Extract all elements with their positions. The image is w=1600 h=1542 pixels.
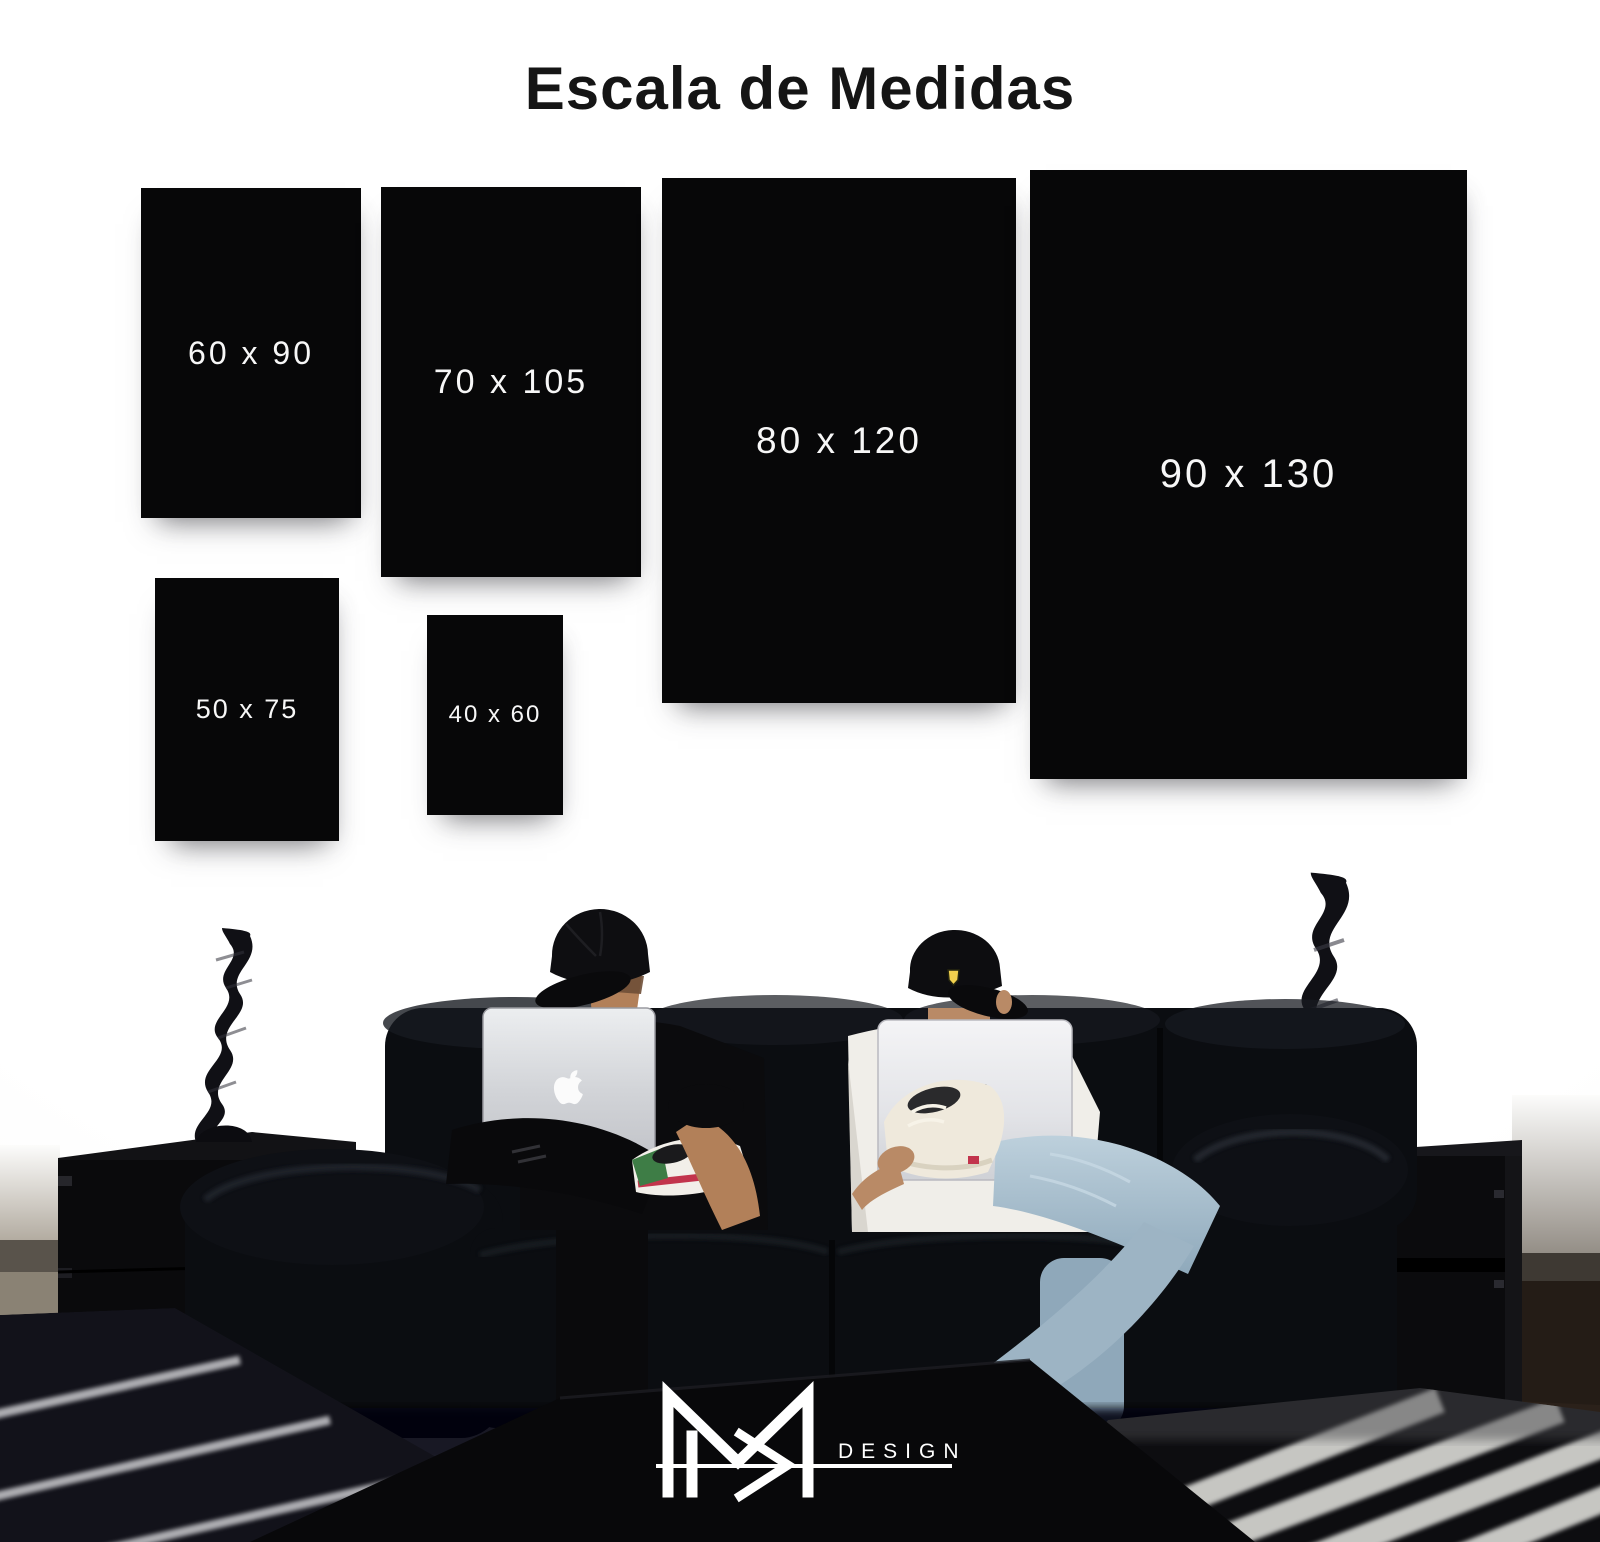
page-title: Escala de Medidas — [0, 56, 1600, 122]
poster-size-label: 70 x 105 — [434, 363, 588, 402]
man-right-ear — [996, 990, 1012, 1014]
poster-size-60x90: 60 x 90 — [141, 188, 361, 518]
brand-wordmark: DESIGN — [838, 1440, 967, 1463]
poster-size-label: 40 x 60 — [449, 701, 542, 729]
twisted-sculpture-left — [195, 928, 253, 1142]
poster-size-label: 90 x 130 — [1160, 452, 1337, 497]
poster-size-40x60: 40 x 60 — [427, 615, 563, 815]
couch-arm-right — [1172, 1114, 1408, 1438]
poster-size-label: 50 x 75 — [196, 694, 299, 725]
poster-size-label: 60 x 90 — [188, 335, 314, 372]
poster-size-70x105: 70 x 105 — [381, 187, 641, 577]
poster-size-90x130: 90 x 130 — [1030, 170, 1467, 779]
baseboard-left — [0, 1240, 60, 1272]
baseboard-right — [1512, 1253, 1600, 1283]
measurement-scale-poster: Escala de Medidas 60 x 90 70 x 105 80 x … — [0, 0, 1600, 1542]
poster-size-50x75: 50 x 75 — [155, 578, 339, 841]
poster-size-label: 80 x 120 — [756, 420, 922, 462]
living-room-scene: DESIGN — [0, 860, 1600, 1542]
poster-size-80x120: 80 x 120 — [662, 178, 1016, 703]
sneaker-tag — [968, 1156, 979, 1164]
